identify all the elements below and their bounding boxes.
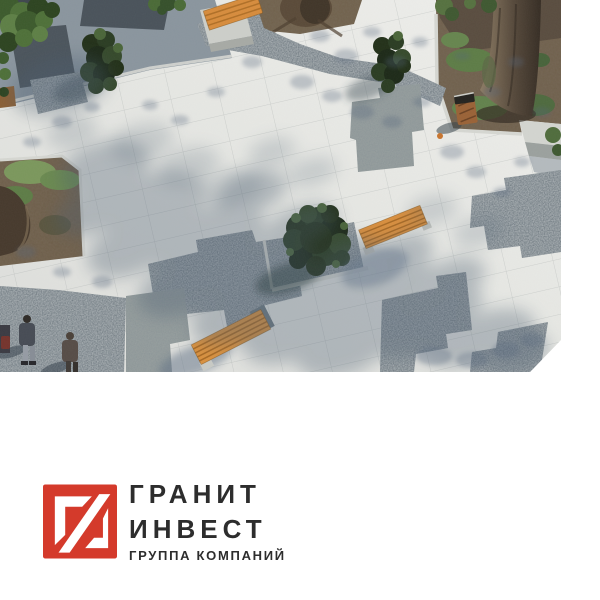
hero-photo	[0, 0, 561, 372]
logo-line2: ИНВЕСТ	[129, 516, 267, 542]
plaza-photo	[0, 0, 561, 372]
logo-mark-icon	[43, 484, 117, 559]
logo-line1: ГРАНИТ	[129, 481, 261, 507]
photo-grain	[0, 0, 561, 372]
logo-tagline: ГРУППА КОМПАНИЙ	[129, 549, 286, 562]
page: ГРАНИТ ИНВЕСТ ГРУППА КОМПАНИЙ	[0, 0, 600, 600]
